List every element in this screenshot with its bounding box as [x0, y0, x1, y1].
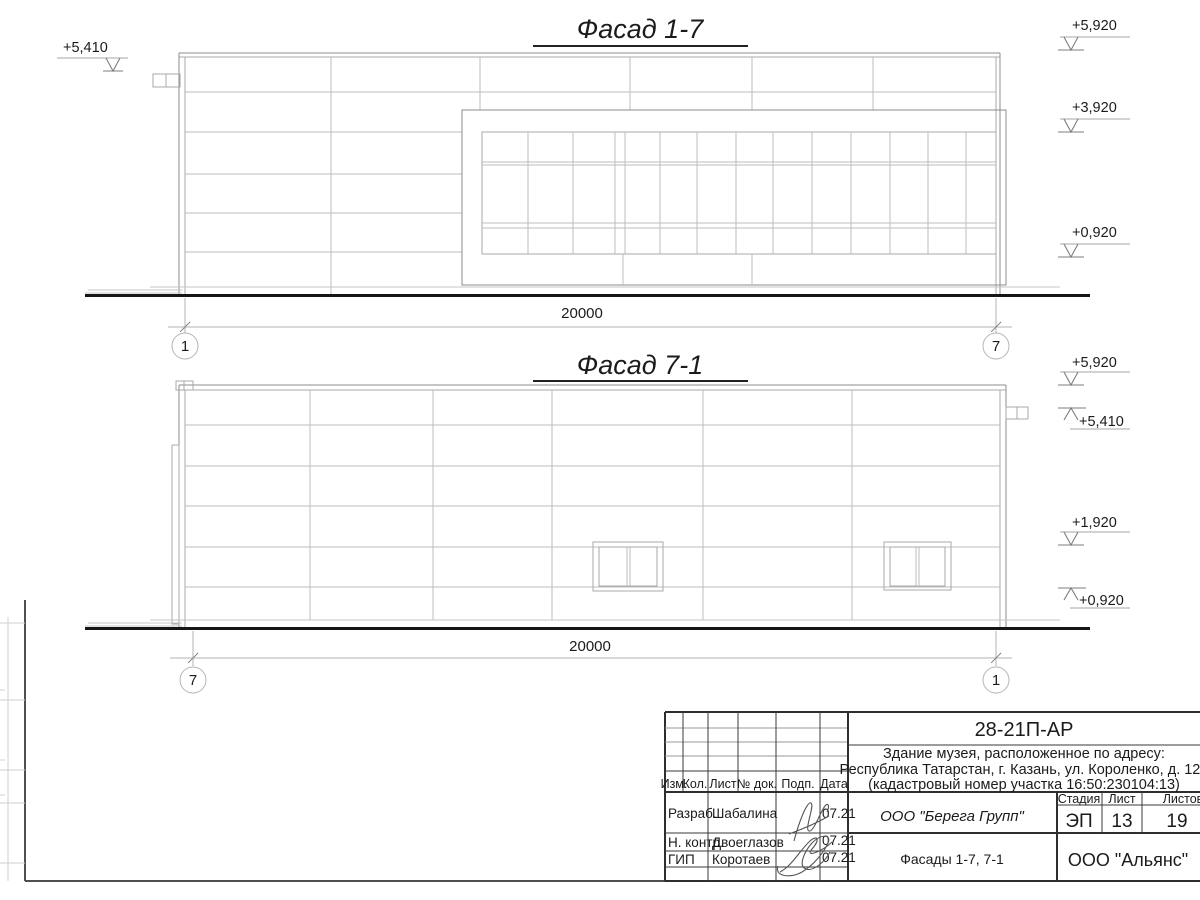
facade-7-1-dimension: 20000 — [569, 638, 611, 655]
elevation-value: +5,920 — [1072, 18, 1117, 34]
stage-label: Стадия — [1058, 792, 1101, 806]
col-list: Лист — [709, 777, 736, 791]
window — [884, 542, 951, 590]
name-nkontr: Двоеглазов — [712, 835, 784, 850]
elevation-value: +5,410 — [63, 40, 108, 56]
elevation-mark: +5,410 — [1058, 408, 1130, 430]
designer-org: ООО "Берега Групп" — [880, 808, 1024, 825]
date-razrab: 07.21 — [822, 806, 856, 821]
elevation-mark: +5,410 — [57, 40, 128, 71]
name-razrab: Шабалина — [712, 806, 778, 821]
elevation-value: +5,410 — [1079, 414, 1124, 430]
project-address-line1: Здание музея, расположенное по адресу: — [883, 746, 1165, 762]
elevation-value: +5,920 — [1072, 355, 1117, 371]
elevation-mark: +3,920 — [1058, 100, 1130, 132]
name-gip: Коротаев — [712, 852, 770, 867]
customer-org: ООО "Альянс" — [1068, 850, 1188, 870]
doc-code: 28-21П-АР — [975, 719, 1074, 741]
drawing-title: Фасады 1-7, 7-1 — [900, 851, 1004, 867]
sheet-label: Лист — [1108, 792, 1135, 806]
col-podp: Подп. — [781, 777, 814, 791]
role-gip: ГИП — [668, 852, 695, 867]
facade-7-1-drawing — [85, 381, 1090, 666]
col-data: Дата — [820, 777, 848, 791]
stage-value: ЭП — [1065, 811, 1092, 832]
col-kol: Кол. — [683, 777, 708, 791]
elevation-value: +1,920 — [1072, 515, 1117, 531]
elevation-mark: +0,920 — [1058, 225, 1130, 257]
facade-1-7-drawing — [85, 46, 1090, 334]
elevation-value: +3,920 — [1072, 100, 1117, 116]
facade-7-1-title: Фасад 7-1 — [577, 350, 703, 380]
project-address-line2: Республика Татарстан, г. Казань, ул. Кор… — [840, 762, 1200, 778]
facade-1-7-dimension: 20000 — [561, 305, 603, 322]
axis-number-left: 1 — [181, 338, 189, 355]
facade-7-1-annotations: Фасад 7-1 20000 7 1 +5,920 +5,410 +1,920 — [180, 350, 1130, 693]
elevation-mark: +5,920 — [1058, 355, 1130, 385]
elevation-mark: +0,920 — [1058, 588, 1130, 609]
project-address-line3: (кадастровый номер участка 16:50:230104:… — [868, 777, 1180, 793]
drawing-sheet: Фасад 1-7 20000 1 7 +5,410 +5,920 +3,920 — [0, 0, 1200, 900]
elevation-value: +0,920 — [1079, 593, 1124, 609]
title-block-text: 28-21П-АР Здание музея, расположенное по… — [661, 719, 1200, 876]
col-doc: № док. — [737, 777, 777, 791]
elevation-mark: +1,920 — [1058, 515, 1130, 545]
facade-1-7-annotations: Фасад 1-7 20000 1 7 +5,410 +5,920 +3,920 — [57, 14, 1130, 359]
sheets-total-label: Листов — [1163, 792, 1200, 806]
sheets-total-value: 19 — [1166, 811, 1187, 832]
axis-number-right: 7 — [992, 338, 1000, 355]
window — [593, 542, 663, 591]
axis-number-right: 1 — [992, 672, 1000, 689]
sheet-value: 13 — [1111, 811, 1132, 832]
role-razrab: Разраб. — [668, 806, 717, 821]
facade-1-7-title: Фасад 1-7 — [577, 14, 704, 44]
axis-number-left: 7 — [189, 672, 197, 689]
elevation-value: +0,920 — [1072, 225, 1117, 241]
elevation-mark: +5,920 — [1058, 18, 1130, 50]
